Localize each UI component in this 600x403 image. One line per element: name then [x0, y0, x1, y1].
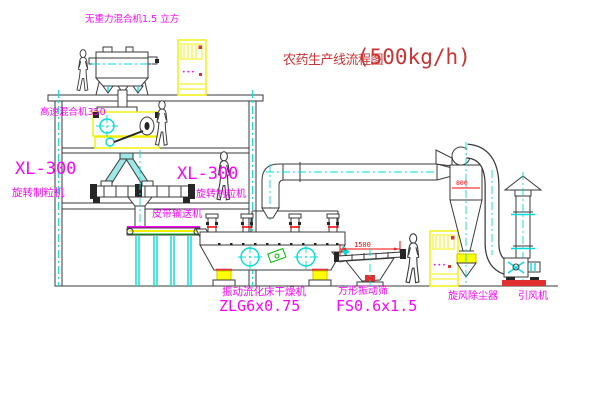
label-granulator-mid-model: XL-300 [177, 166, 238, 183]
label-fan: 引风机 [518, 292, 548, 302]
label-dryer-name: 振动流化床干燥机 [222, 287, 306, 298]
label-belt-conveyor: 皮带输送机 [152, 210, 202, 220]
label-gravity-mixer: 无重力混合机1.5 立方 [85, 15, 179, 25]
person-top-floor [77, 50, 88, 91]
dryer-springs [213, 270, 331, 286]
label-granulator-mid-name: 旋转制粒机 [196, 190, 246, 200]
label-cyclone: 旋风除尘器 [448, 292, 498, 302]
label-granulator-left-name: 旋转制粒机 [12, 188, 65, 199]
label-screen-name: 方形振动筛 [338, 287, 388, 297]
person-ground [406, 234, 419, 283]
control-cabinet-a [178, 40, 206, 95]
flow-diagram: 无重力混合机1.5 立方 农药生产线流程图 (500kg/h) 高速混合机350… [0, 0, 600, 403]
dimension-cyclone-body: 800 [456, 180, 468, 187]
label-high-speed-mixer: 高速混合机350 [40, 108, 106, 118]
dimension-screen-length: 1500 [354, 242, 371, 249]
label-granulator-left-model: XL-300 [15, 161, 76, 178]
exhaust-duct [252, 162, 452, 228]
cabinet-b-buttons-icon: ••• [433, 263, 447, 269]
cabinet-a-buttons-icon: ••• [182, 70, 196, 76]
dryer-drawing [200, 214, 350, 286]
fan-drawing [502, 258, 546, 286]
gravity-mixer-drawing [89, 47, 159, 114]
label-screen-model: FS0.6x1.5 [336, 299, 417, 314]
label-dryer-model: ZLG6x0.75 [219, 299, 300, 314]
diagram-title-capacity: (500kg/h) [357, 47, 471, 68]
control-cabinet-b [430, 231, 458, 286]
